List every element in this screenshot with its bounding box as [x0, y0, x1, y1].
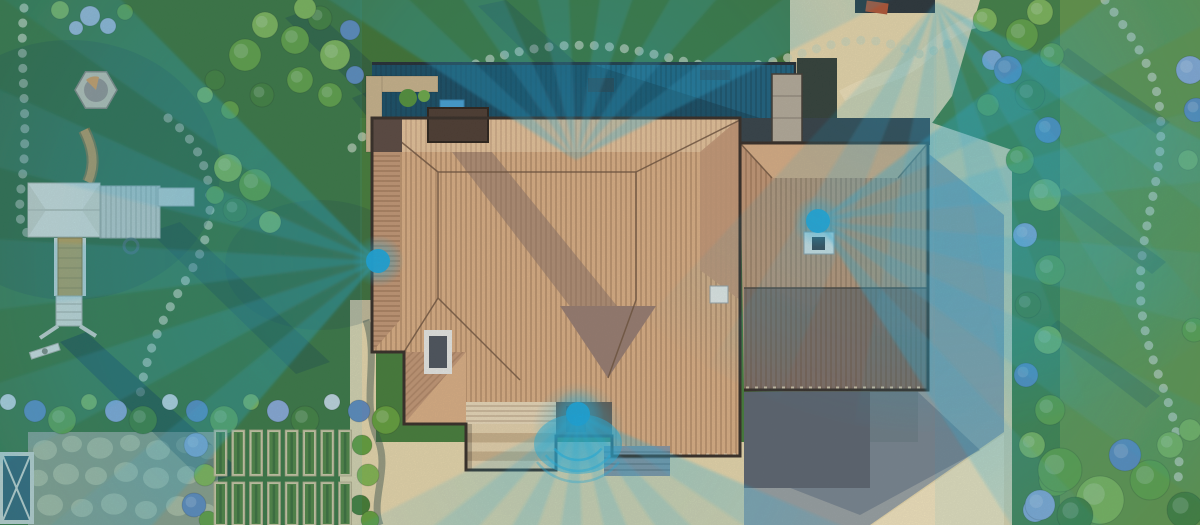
grain-texture [0, 0, 1200, 525]
aerial-scene [0, 0, 1200, 525]
aerial-security-illustration [0, 0, 1200, 525]
